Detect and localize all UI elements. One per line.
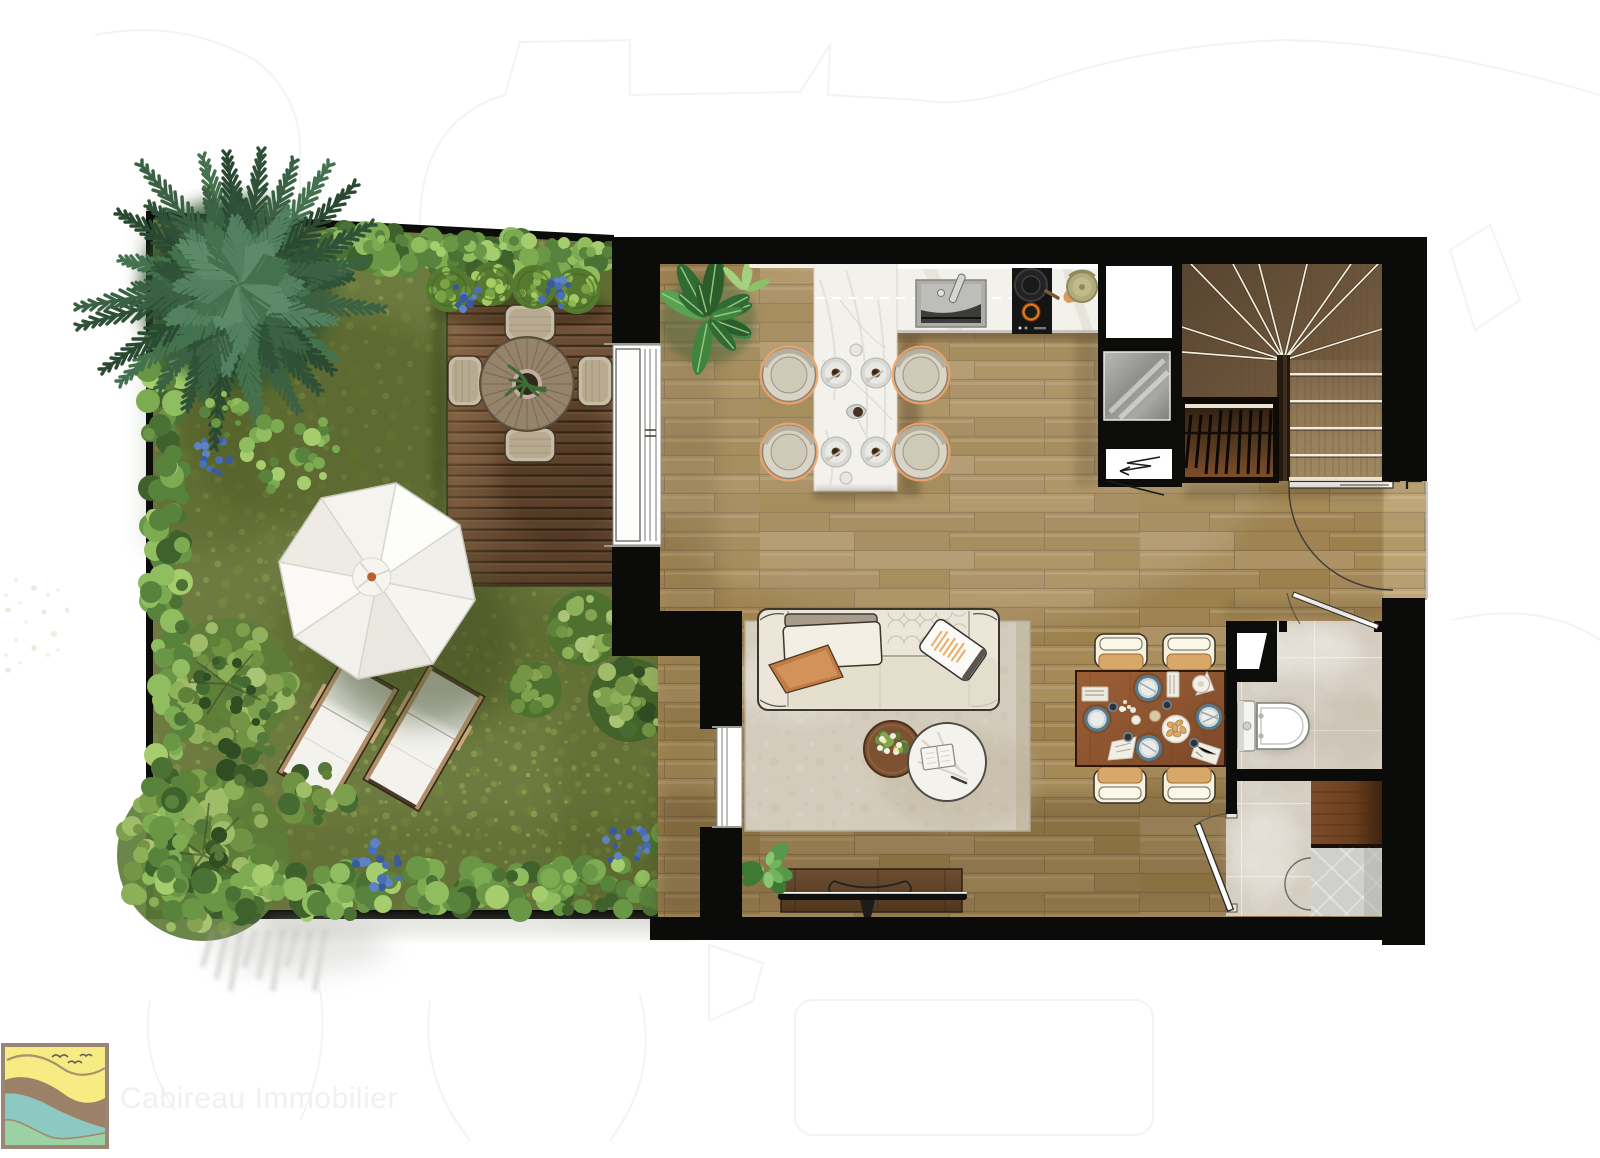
svg-text:Cabireau Immobilier: Cabireau Immobilier <box>120 1082 398 1115</box>
